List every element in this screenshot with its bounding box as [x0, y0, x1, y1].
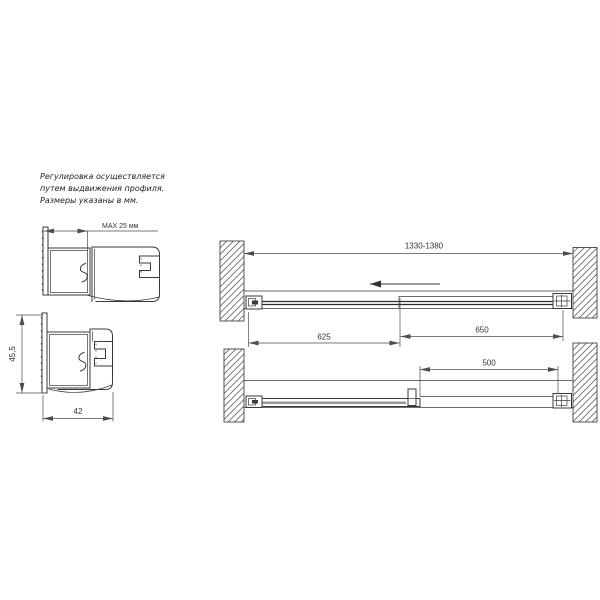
technical-drawing-page: Регулировка осуществляется путем выдвиже… — [0, 0, 600, 600]
wall-bracket-left — [246, 396, 262, 408]
spring-clip — [80, 264, 87, 283]
instruction-note: Регулировка осуществляется путем выдвиже… — [40, 172, 165, 205]
fixed-panel — [399, 297, 554, 309]
wall-left-hatched — [220, 241, 244, 321]
dimension-profile-width: 42 — [43, 392, 113, 422]
dimension-opening-label: 500 — [482, 359, 496, 368]
wall-right-hatched — [573, 343, 597, 422]
plan-view-closed: 1330-1380 — [220, 241, 597, 347]
door-track — [244, 291, 573, 309]
dimension-fixed-panel-label: 650 — [475, 326, 489, 335]
wall-bracket-right — [553, 294, 572, 309]
dimension-door-panel-label: 625 — [317, 333, 331, 342]
sliding-panel-open — [246, 399, 420, 407]
wall-right-hatched — [573, 248, 597, 319]
dimension-max-extension-label: MAX 25 мм — [102, 223, 139, 230]
wall-profile-box — [47, 332, 90, 388]
plan-view-open: 500 — [224, 343, 597, 422]
wall-flange — [43, 227, 48, 295]
sliding-panel — [249, 302, 553, 305]
note-line-1: Регулировка осуществляется — [40, 172, 165, 181]
note-line-2: путем выдвижения профиля. — [40, 184, 164, 193]
wall-flange — [42, 313, 47, 393]
wall-bracket-left — [246, 296, 262, 309]
spring-clip — [79, 353, 86, 372]
note-line-3: Размеры указаны в мм. — [40, 196, 138, 205]
dimension-opening: 500 — [420, 359, 558, 397]
drawing-canvas: Регулировка осуществляется путем выдвиже… — [0, 0, 600, 600]
dimension-profile-height-label: 45,5 — [8, 346, 17, 362]
wall-left-hatched — [224, 349, 244, 422]
dimension-profile-width-label: 42 — [74, 407, 83, 416]
dimension-profile-height: 45,5 — [8, 315, 46, 393]
wall-bracket-right — [553, 394, 572, 409]
dimension-door-panel: 625 — [249, 298, 401, 347]
dimension-total-width-label: 1330-1380 — [405, 242, 444, 251]
adjustable-profile — [88, 247, 160, 302]
dimension-fixed-panel: 650 — [401, 310, 564, 341]
dimension-total-width: 1330-1380 — [244, 242, 573, 254]
profile-section-retracted: 45,5 42 — [8, 313, 113, 422]
profile-section-extended: MAX 25 мм — [42, 223, 159, 302]
door-handle — [408, 389, 416, 406]
wall-profile-box — [48, 248, 90, 295]
